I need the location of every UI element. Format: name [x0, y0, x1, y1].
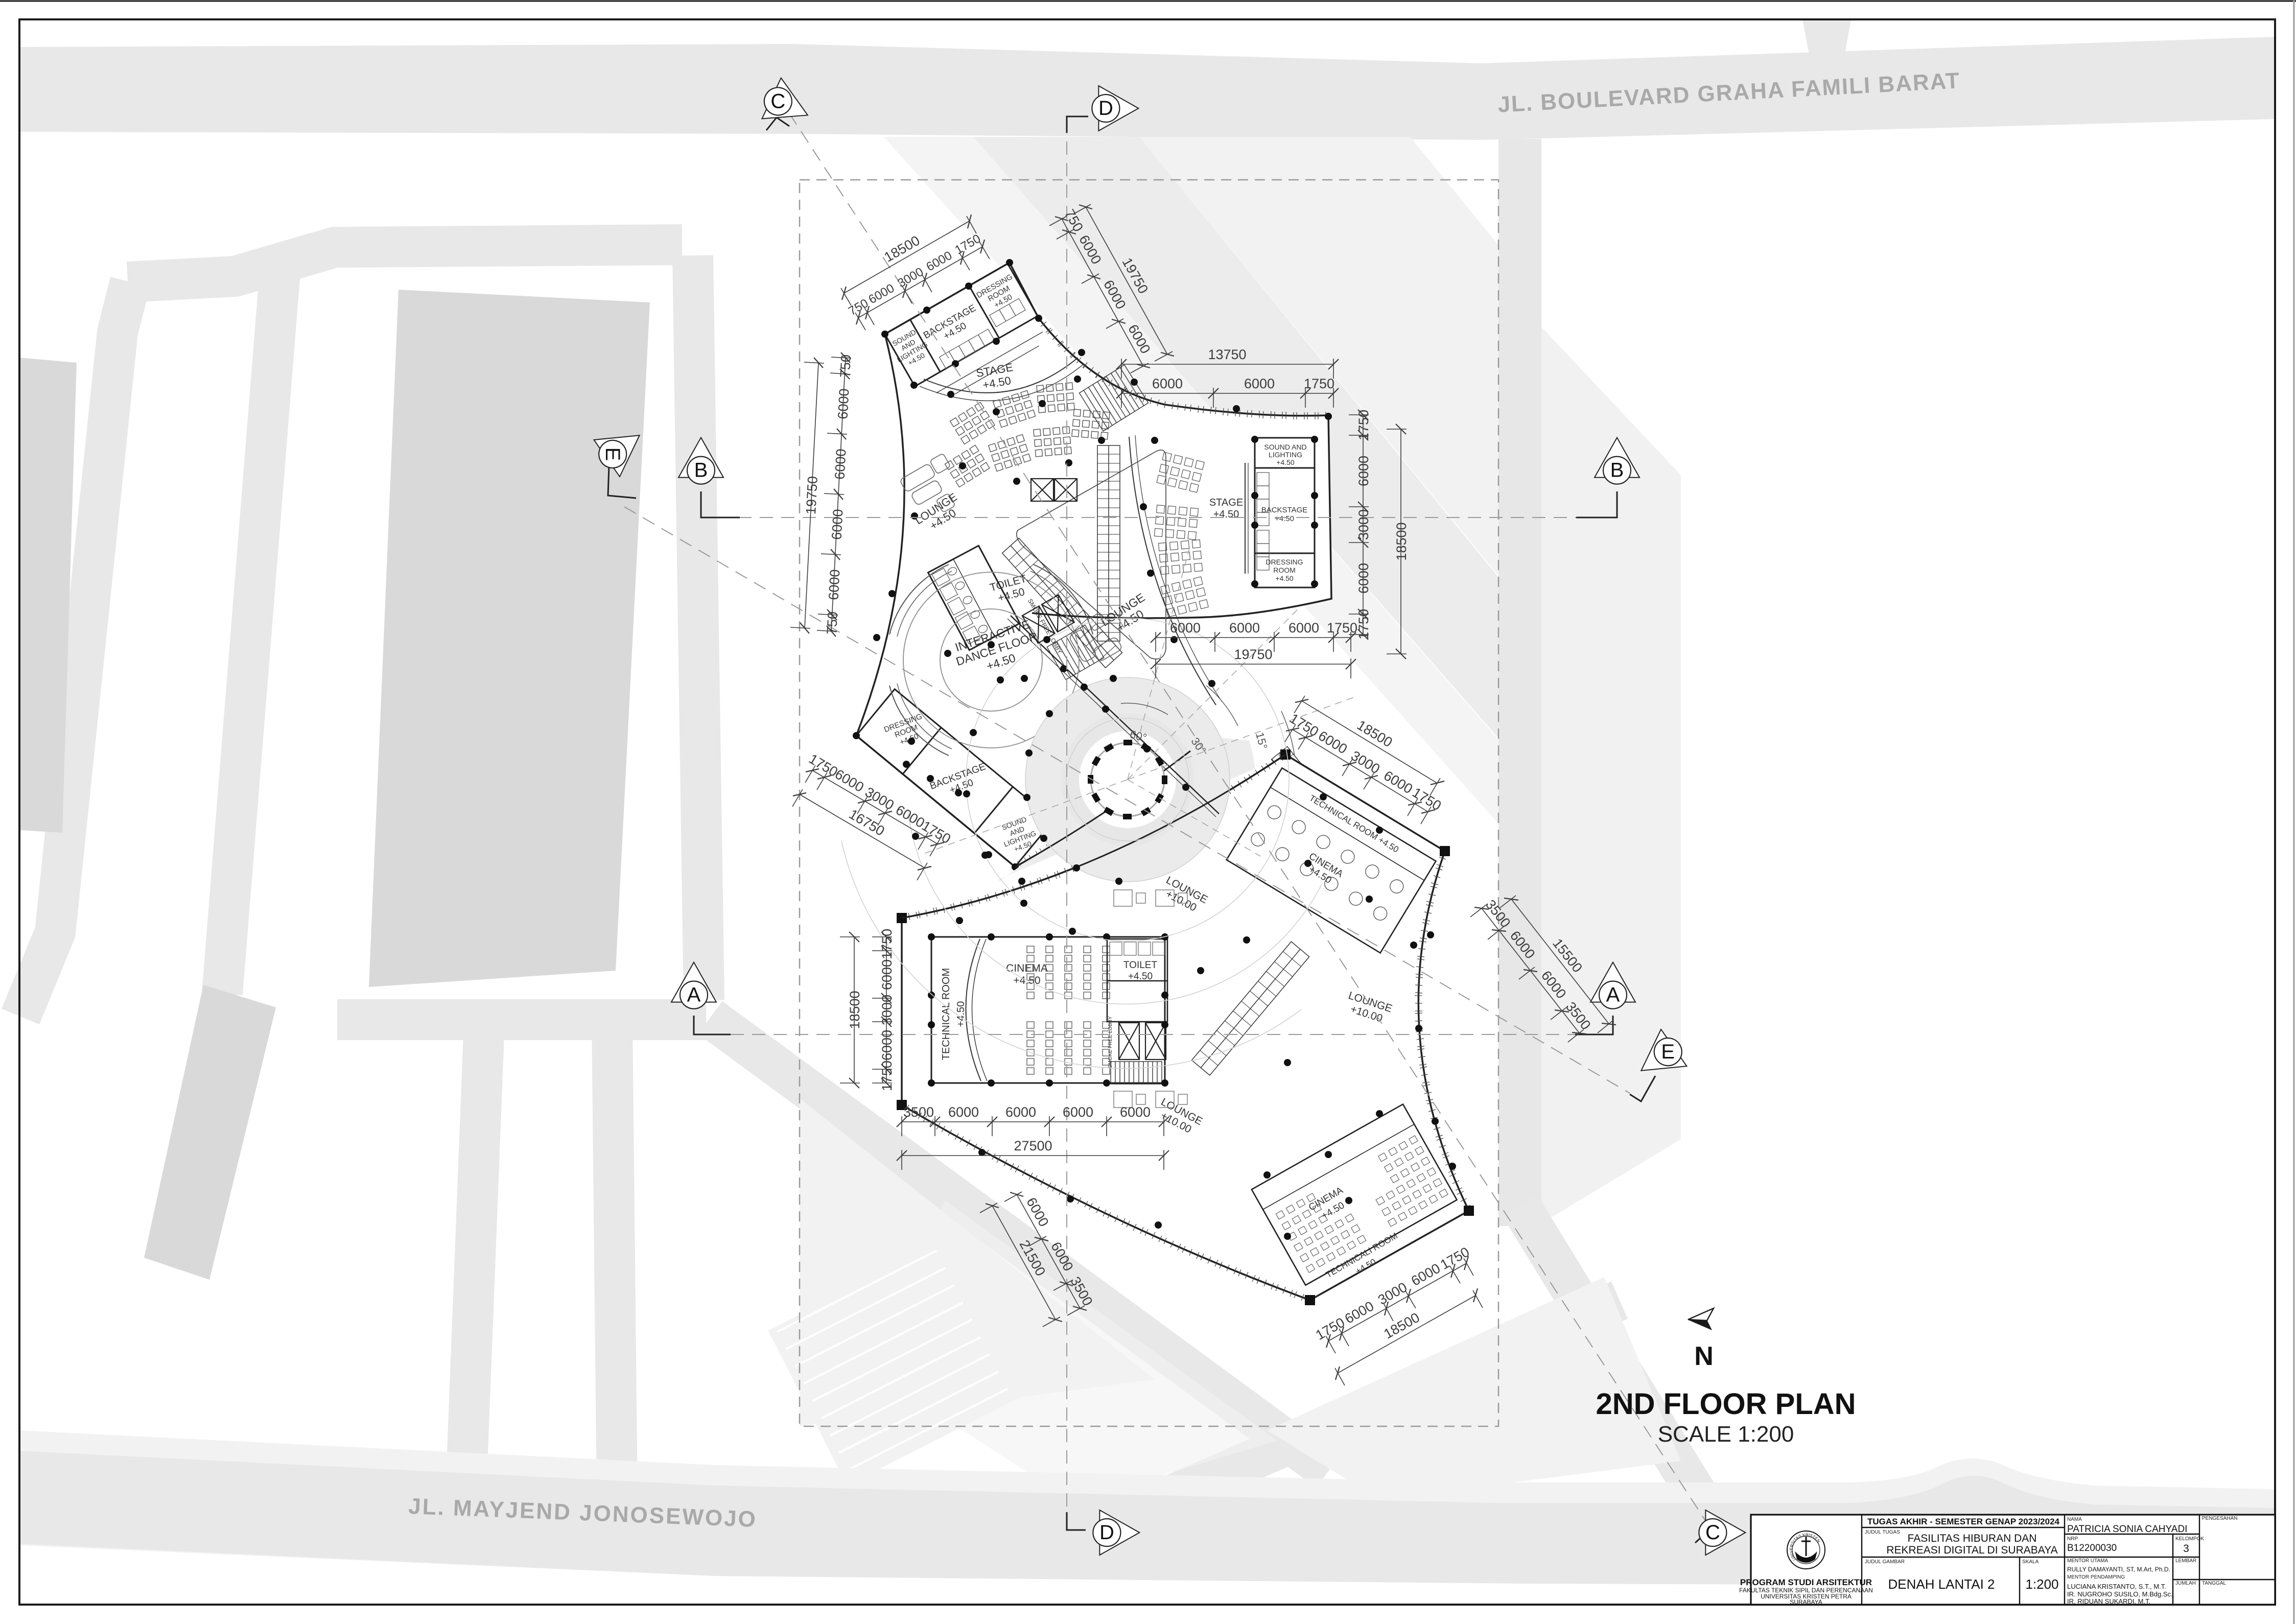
svg-text:3000: 3000 — [1356, 509, 1371, 540]
svg-text:FASILITAS HIBURAN DANREKREASI: FASILITAS HIBURAN DANREKREASI DIGITAL DI… — [1886, 1533, 2057, 1556]
svg-text:PROGRAM STUDI ARSITEKTUR: PROGRAM STUDI ARSITEKTUR — [1740, 1578, 1872, 1587]
svg-text:NRP: NRP — [2067, 1536, 2078, 1542]
svg-text:6000: 6000 — [1005, 1104, 1036, 1120]
svg-text:TUGAS AKHIR - SEMESTER GENAP 2: TUGAS AKHIR - SEMESTER GENAP 2023/2024 — [1867, 1517, 2060, 1526]
svg-text:6000: 6000 — [832, 449, 849, 480]
svg-text:27500: 27500 — [1014, 1138, 1052, 1154]
svg-text:1750: 1750 — [1304, 376, 1334, 391]
svg-text:1750: 1750 — [1356, 410, 1371, 440]
svg-text:N: N — [1694, 1341, 1714, 1371]
svg-text:SMOKE FREE LOBBY: SMOKE FREE LOBBY — [1108, 1016, 1113, 1068]
svg-text:PENGESAHAN: PENGESAHAN — [2202, 1516, 2237, 1521]
svg-text:19750: 19750 — [1234, 647, 1272, 662]
svg-text:1750: 1750 — [879, 929, 895, 959]
svg-text:13750: 13750 — [1208, 347, 1246, 362]
svg-text:MENTOR PENDAMPING: MENTOR PENDAMPING — [2067, 1574, 2125, 1580]
svg-text:1750: 1750 — [879, 1061, 895, 1091]
svg-text:TOILET+4.50: TOILET+4.50 — [1123, 960, 1158, 982]
svg-text:3000: 3000 — [879, 995, 895, 1025]
svg-text:19750: 19750 — [803, 476, 821, 515]
svg-text:6000: 6000 — [829, 509, 846, 540]
svg-text:IR. RIDUAN SUKARDI, M.T.: IR. RIDUAN SUKARDI, M.T. — [2067, 1597, 2150, 1605]
svg-text:B: B — [694, 459, 708, 482]
svg-text:6000: 6000 — [1244, 376, 1275, 391]
svg-text:1:200: 1:200 — [2025, 1576, 2058, 1592]
svg-text:TANGGAL: TANGGAL — [2202, 1581, 2226, 1586]
svg-text:6000: 6000 — [1288, 620, 1319, 636]
svg-text:1750: 1750 — [1356, 609, 1371, 640]
svg-text:18500: 18500 — [847, 991, 862, 1029]
svg-text:750: 750 — [837, 354, 854, 378]
svg-text:18500: 18500 — [1394, 522, 1409, 560]
svg-text:KELOMPOK: KELOMPOK — [2175, 1536, 2204, 1542]
svg-text:STAGE+4.50: STAGE+4.50 — [1209, 497, 1243, 520]
svg-text:SCALE 1:200: SCALE 1:200 — [1658, 1422, 1794, 1447]
svg-text:C: C — [770, 90, 785, 112]
svg-text:E: E — [601, 448, 624, 461]
svg-text:6000: 6000 — [948, 1104, 979, 1120]
svg-text:SURABAYA: SURABAYA — [1790, 1598, 1822, 1606]
svg-text:1750: 1750 — [1327, 620, 1357, 636]
svg-text:NAMA: NAMA — [2067, 1517, 2082, 1522]
svg-text:B12200030: B12200030 — [2067, 1543, 2117, 1554]
svg-text:6000: 6000 — [1063, 1104, 1093, 1120]
svg-text:6000: 6000 — [1120, 1104, 1151, 1120]
svg-text:D: D — [1098, 97, 1113, 120]
svg-text:MENTOR UTAMA: MENTOR UTAMA — [2067, 1558, 2108, 1564]
svg-text:PATRICIA SONIA CAHYADI: PATRICIA SONIA CAHYADI — [2067, 1524, 2187, 1535]
svg-text:6000: 6000 — [879, 959, 895, 990]
svg-text:6000: 6000 — [1356, 456, 1371, 486]
svg-text:6000: 6000 — [826, 569, 842, 601]
svg-text:6000: 6000 — [879, 1030, 895, 1061]
svg-text:3: 3 — [2183, 1543, 2189, 1555]
svg-text:A: A — [1606, 984, 1620, 1006]
svg-text:2ND FLOOR PLAN: 2ND FLOOR PLAN — [1596, 1387, 1856, 1421]
svg-text:RULLY DAMAYANTI, ST, M.Art, Ph: RULLY DAMAYANTI, ST, M.Art, Ph.D. — [2067, 1566, 2170, 1573]
svg-text:A: A — [687, 984, 701, 1006]
svg-text:DENAH LANTAI 2: DENAH LANTAI 2 — [1888, 1576, 1995, 1592]
svg-text:LEMBAR: LEMBAR — [2175, 1558, 2196, 1564]
svg-text:D: D — [1099, 1521, 1114, 1544]
svg-text:E: E — [1661, 1041, 1675, 1063]
svg-text:+4.50: +4.50 — [955, 1001, 967, 1027]
svg-text:6000: 6000 — [1229, 620, 1260, 636]
svg-text:JUDUL TUGAS: JUDUL TUGAS — [1865, 1529, 1900, 1535]
svg-text:6000: 6000 — [1356, 563, 1371, 594]
svg-text:6000: 6000 — [1152, 376, 1183, 391]
svg-text:SKALA: SKALA — [2022, 1559, 2039, 1565]
svg-text:6000: 6000 — [1170, 620, 1201, 636]
svg-text:LUCIANA KRISTANTO, S.T., M.T.: LUCIANA KRISTANTO, S.T., M.T. — [2067, 1583, 2166, 1590]
svg-text:750: 750 — [824, 611, 840, 635]
svg-text:3500: 3500 — [903, 1104, 934, 1120]
svg-text:JUDUL GAMBAR: JUDUL GAMBAR — [1865, 1559, 1905, 1565]
svg-text:JUMLAH: JUMLAH — [2175, 1581, 2196, 1586]
svg-text:6000: 6000 — [835, 388, 852, 420]
svg-text:C: C — [1705, 1521, 1720, 1544]
svg-text:B: B — [1610, 459, 1624, 482]
svg-text:IR. NUGROHO SUSILO, M.Bdg.Sc.: IR. NUGROHO SUSILO, M.Bdg.Sc. — [2067, 1590, 2173, 1598]
svg-text:TECHNICAL ROOM: TECHNICAL ROOM — [941, 968, 952, 1060]
